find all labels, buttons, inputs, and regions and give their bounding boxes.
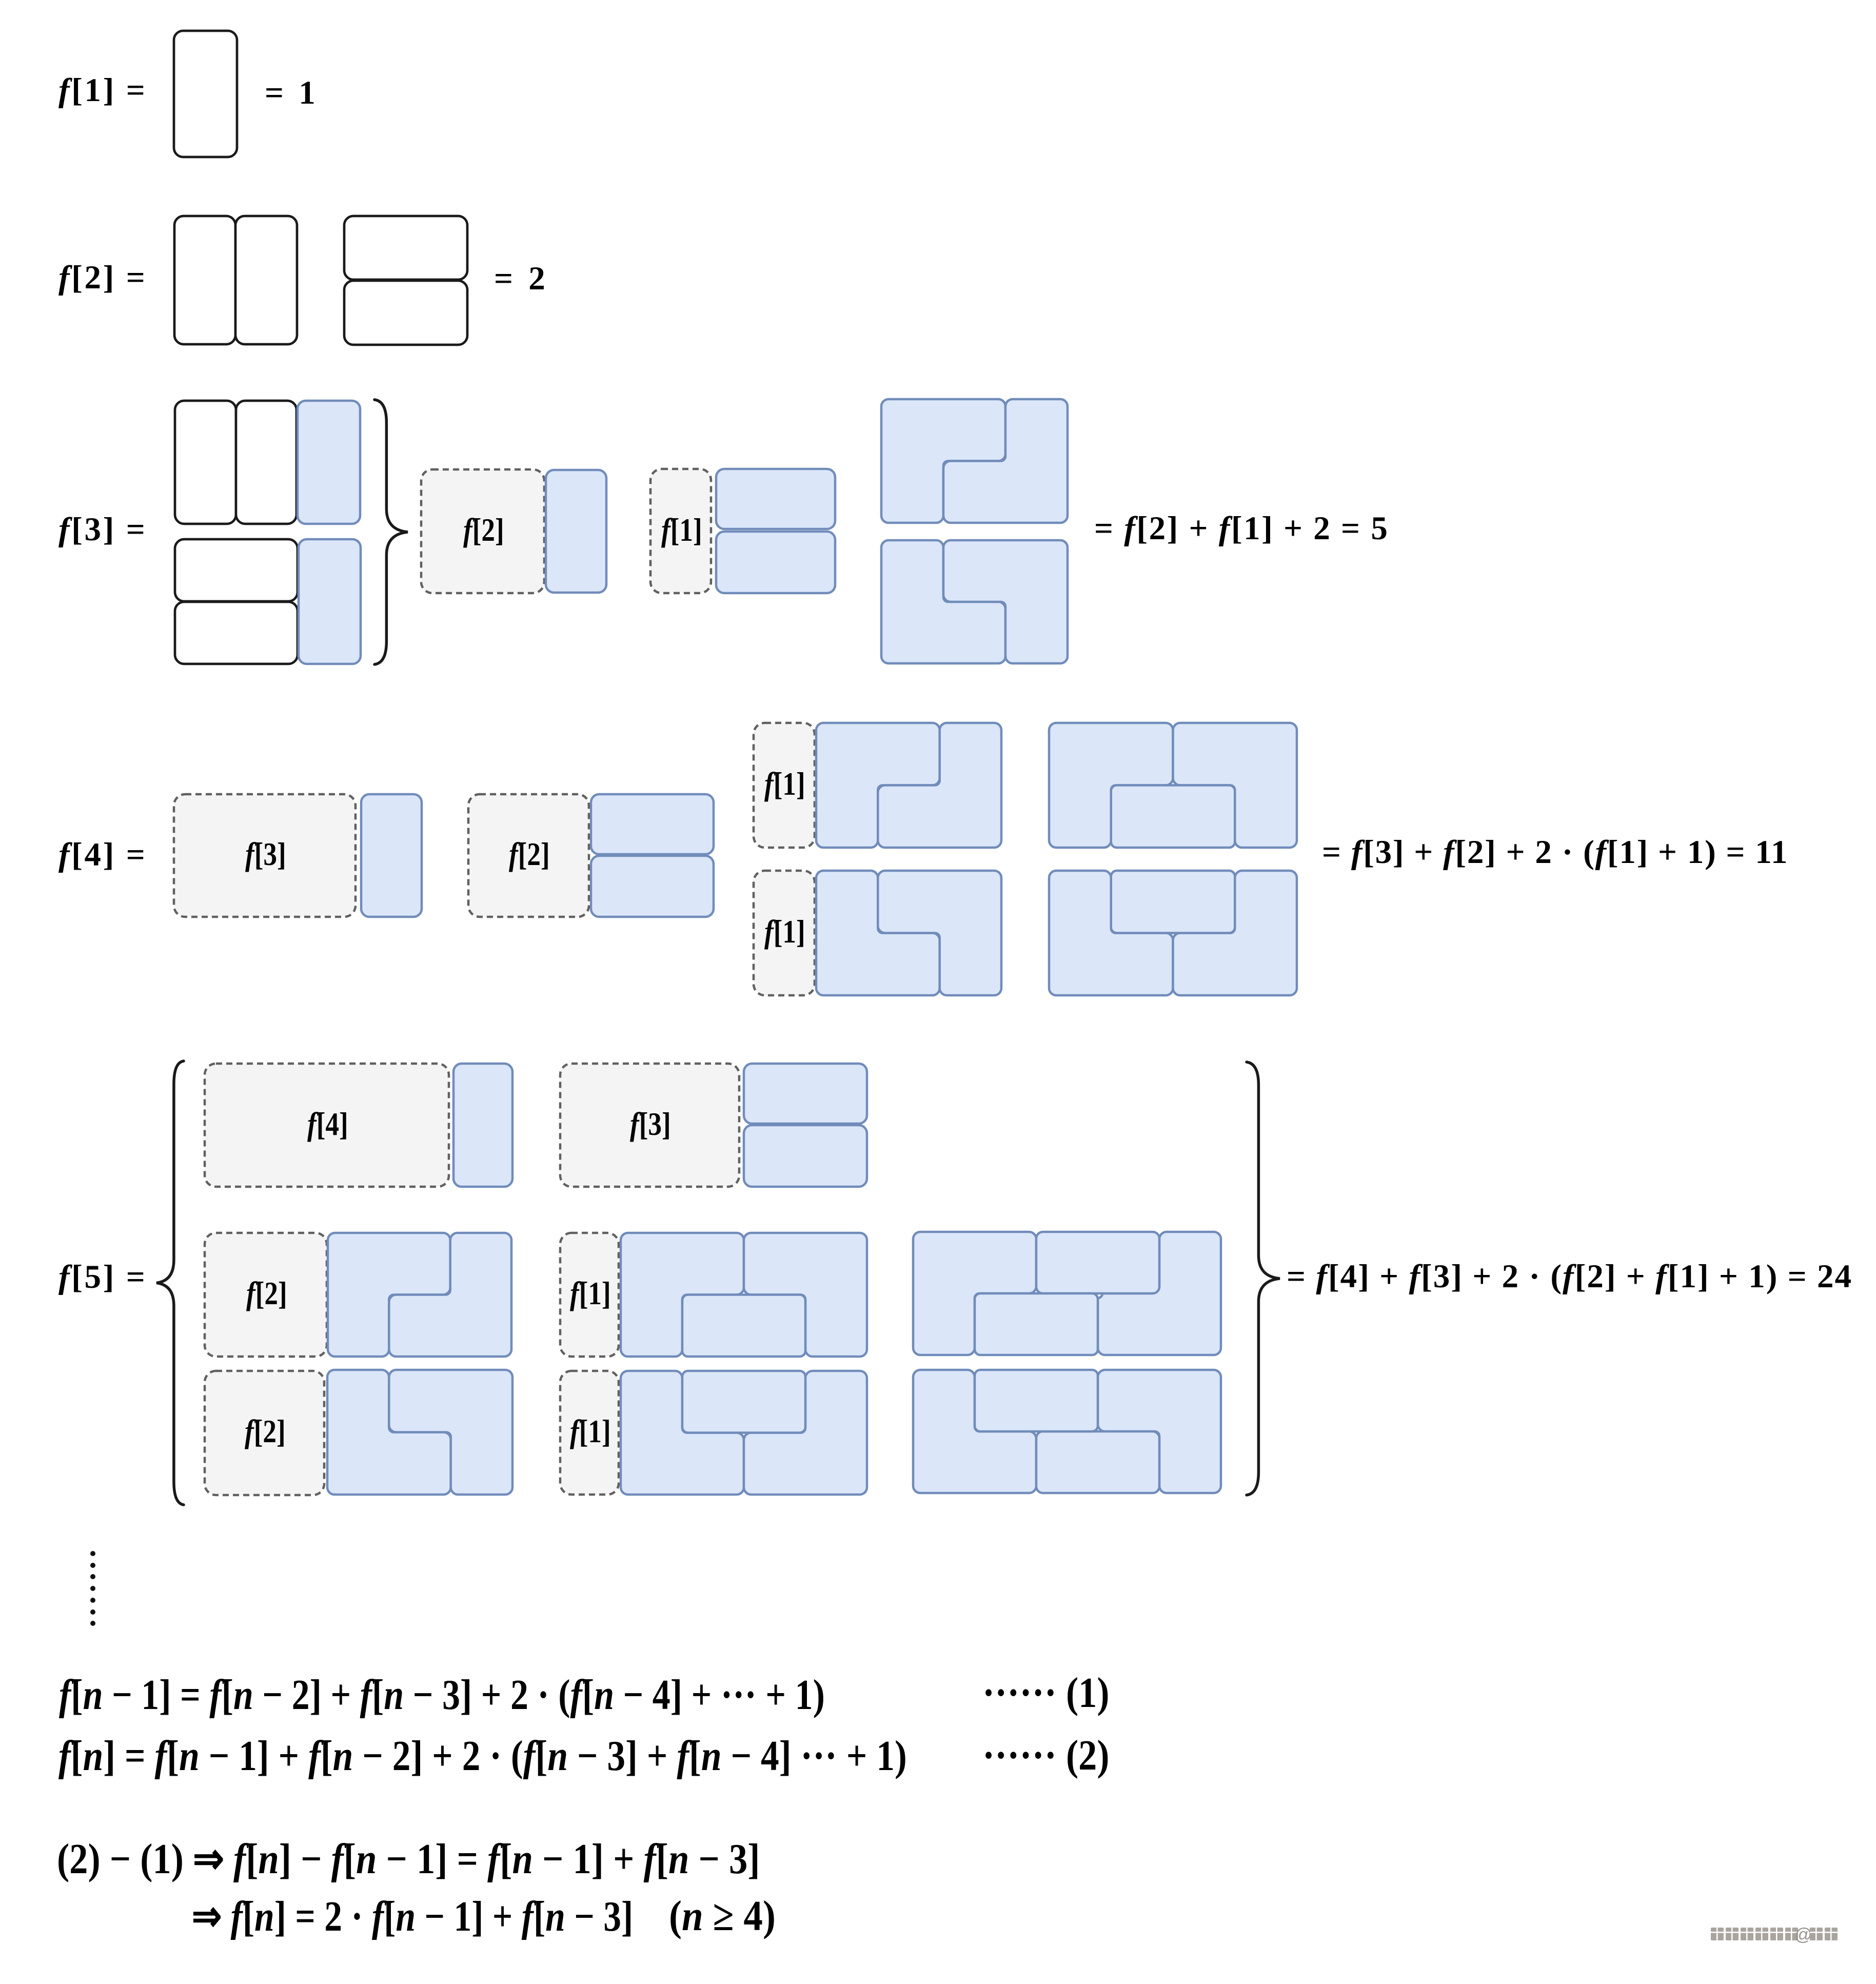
svg-text:@: @ bbox=[1794, 1925, 1812, 1944]
